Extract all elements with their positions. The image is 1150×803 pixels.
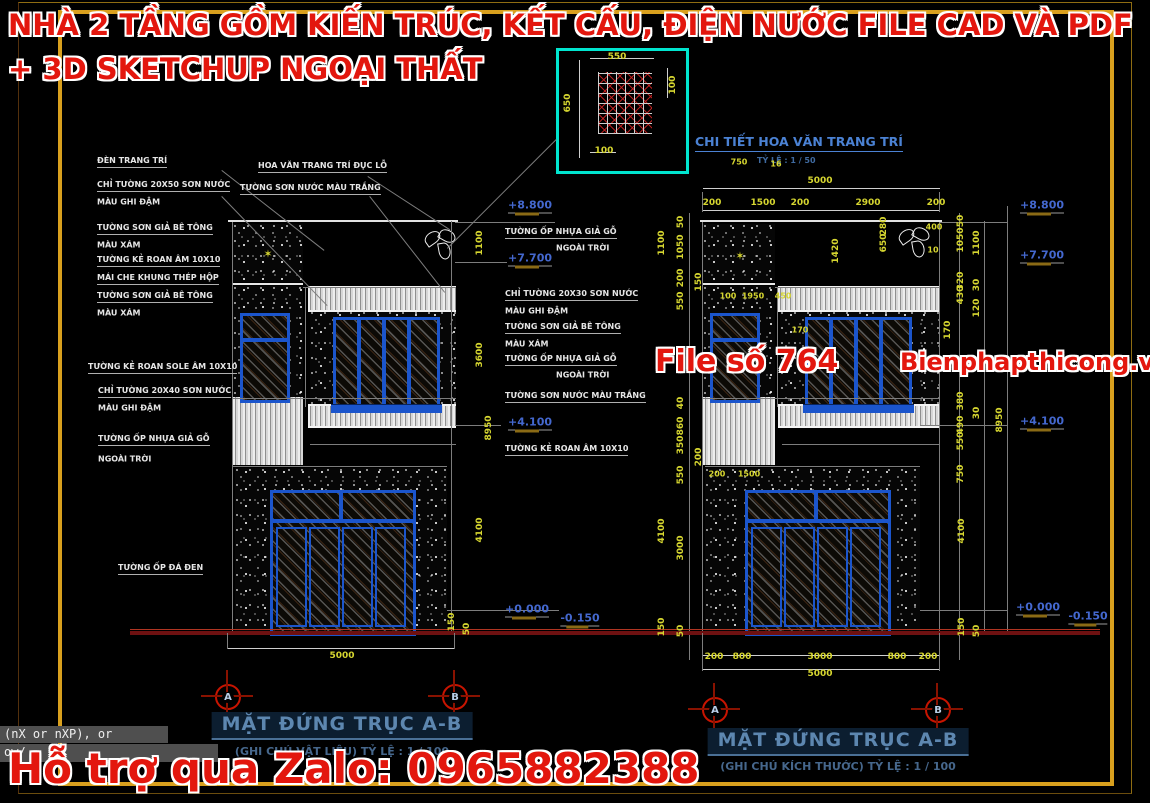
- line: [700, 220, 942, 222]
- dim-text: 350: [676, 436, 686, 455]
- door-leaf: [850, 527, 881, 627]
- dim-text: 1420: [831, 238, 841, 263]
- line: [303, 287, 456, 288]
- grid-axis-bubble: A: [215, 684, 241, 710]
- left-main-door: [270, 490, 416, 636]
- level-text: +0.000: [505, 603, 549, 618]
- note-label: ĐÈN TRANG TRÍ: [97, 156, 167, 168]
- grid-axis-bubble: B: [442, 684, 468, 710]
- window-mullion: [879, 320, 883, 404]
- window-sill: [803, 404, 914, 413]
- note-label: NGOÀI TRỜI: [556, 371, 609, 380]
- dim-text: 450: [775, 292, 792, 301]
- dim-text: 280: [879, 217, 889, 236]
- dim-text: 200: [791, 198, 810, 208]
- line: [305, 287, 306, 407]
- note-label: CHỈ TƯỜNG 20X50 SƠN NƯỚC: [97, 180, 230, 192]
- note-label: CHỈ TƯỜNG 20X40 SƠN NƯỚC: [98, 386, 231, 398]
- dim-text: 4100: [475, 517, 485, 542]
- line: [451, 221, 452, 632]
- dim-text: 50: [956, 215, 966, 228]
- dim-text: 1500: [750, 198, 775, 208]
- window-sill: [331, 404, 442, 413]
- door-leaf: [342, 527, 373, 627]
- note-label: TƯỜNG ỐP NHỰA GIẢ GỖ: [98, 434, 210, 446]
- line: [455, 222, 555, 223]
- line: [689, 213, 690, 660]
- dim-text: 800: [733, 652, 752, 662]
- dim-text: 100: [595, 146, 614, 156]
- dim-text: 3600: [475, 342, 485, 367]
- dim-text: 550: [608, 52, 627, 62]
- dim-text: 550: [676, 466, 686, 485]
- dim-text: 200: [709, 470, 726, 479]
- dim-text: 150: [447, 613, 457, 632]
- dim-text: 50: [972, 625, 982, 638]
- ornament-icon: ✶: [263, 248, 272, 261]
- dim-text: 170: [943, 321, 953, 340]
- dim-text: 16: [770, 160, 781, 169]
- note-label: TƯỜNG SƠN GIẢ BÊ TÔNG: [97, 223, 213, 235]
- note-label: TƯỜNG ỐP NHỰA GIẢ GỖ: [505, 227, 617, 239]
- dim-text: 200: [705, 652, 724, 662]
- line: [703, 398, 940, 399]
- note-label: TƯỜNG ỐP NHỰA GIẢ GỖ: [505, 354, 617, 366]
- dim-text: 170: [792, 326, 809, 335]
- level-text: +7.700: [1020, 249, 1064, 264]
- right-main-door: [745, 490, 891, 636]
- note-label: NGOÀI TRỜI: [98, 455, 151, 464]
- door-transom-bar: [273, 519, 413, 523]
- level-text: +8.800: [508, 199, 552, 214]
- line: [233, 398, 456, 399]
- left-small-window: [240, 313, 290, 403]
- grid-axis-bubble: B: [925, 697, 951, 723]
- door-leaf: [784, 527, 815, 627]
- note-label: CHỈ TƯỜNG 20X30 SƠN NƯỚC: [505, 289, 638, 301]
- dim-text: 40: [676, 397, 686, 410]
- line: [775, 287, 940, 288]
- command-line-row1[interactable]: (nX or nXP), or: [0, 726, 168, 743]
- dim-text: 8950: [995, 407, 1005, 432]
- watermark-zalo-contact: Hỗ trợ qua Zalo: 0965882388: [8, 744, 700, 793]
- line: [455, 425, 501, 426]
- dim-text: 5000: [807, 669, 832, 679]
- dim-text: 1100: [657, 230, 667, 255]
- line: [233, 466, 447, 467]
- leaf-ornament: [422, 228, 458, 266]
- ornament-icon: ✶: [735, 250, 744, 263]
- dim-text: 400: [926, 223, 943, 232]
- dim-text: 3000: [676, 535, 686, 560]
- dim-text: 4100: [657, 518, 667, 543]
- window-mullion: [357, 320, 361, 404]
- note-label: TƯỜNG SƠN NƯỚC MÀU TRẮNG: [240, 183, 381, 195]
- dim-text: 150: [694, 273, 704, 292]
- dim-text: 50: [676, 625, 686, 638]
- line: [310, 444, 456, 445]
- line: [939, 222, 940, 632]
- line: [228, 648, 455, 649]
- dim-text: 150: [657, 618, 667, 637]
- dim-text: 100: [668, 76, 678, 95]
- left-elevation-title: MẶT ĐỨNG TRỤC A-B: [212, 712, 473, 740]
- line: [130, 629, 1100, 630]
- window-mullion: [713, 338, 757, 342]
- note-label: TƯỜNG ỐP ĐÁ ĐEN: [118, 563, 203, 575]
- line: [232, 222, 233, 632]
- dim-text: 5000: [807, 176, 832, 186]
- left-band-line: [233, 283, 303, 285]
- dim-text: 550: [676, 292, 686, 311]
- watermark-file-number: File số 764: [655, 344, 838, 379]
- dim-text: 2900: [855, 198, 880, 208]
- level-text: +4.100: [508, 416, 552, 431]
- dim-text: 1100: [972, 230, 982, 255]
- window-mullion: [382, 320, 386, 404]
- level-text: -0.150: [560, 612, 599, 627]
- dim-text: 800: [888, 652, 907, 662]
- note-label: MÀU XÁM: [505, 340, 549, 349]
- grid-axis-bubble: A: [702, 697, 728, 723]
- level-text: +7.700: [508, 252, 552, 267]
- watermark-website: Bienphapthicong.vn: [900, 348, 1150, 376]
- note-label: TƯỜNG KẺ ROAN ÂM 10X10: [505, 444, 628, 456]
- door-transom-bar: [748, 519, 888, 523]
- right-wood-panel: [703, 397, 775, 465]
- dim-text: 5000: [329, 651, 354, 661]
- door-leaf: [751, 527, 782, 627]
- line: [579, 60, 580, 158]
- dim-text: 3000: [807, 652, 832, 662]
- dim-text: 750: [956, 465, 966, 484]
- level-text: +0.000: [1016, 601, 1060, 616]
- window-mullion: [854, 320, 858, 404]
- line: [703, 188, 940, 189]
- line: [703, 210, 940, 211]
- dim-text: 120: [972, 299, 982, 318]
- door-leaf: [276, 527, 307, 627]
- right-elevation-subtitle: (GHI CHÚ KÍCH THƯỚC) TỶ LỆ : 1 / 100: [720, 760, 956, 773]
- dim-text: 860: [676, 417, 686, 436]
- dim-text: 50: [676, 216, 686, 229]
- note-label: MÀU GHI ĐẬM: [97, 198, 160, 207]
- watermark-title-line1: NHÀ 2 TẦNG GỒM KIẾN TRÚC, KẾT CẤU, ĐIỆN …: [8, 8, 1133, 42]
- line: [702, 633, 703, 671]
- line: [227, 633, 228, 649]
- dim-text: 200: [676, 269, 686, 288]
- dim-text: 430: [956, 286, 966, 305]
- dim-text: 50: [462, 623, 472, 636]
- dim-text: 150: [957, 618, 967, 637]
- dim-text: 750: [731, 158, 748, 167]
- note-label: MÀU XÁM: [97, 241, 141, 250]
- door-leaf: [817, 527, 848, 627]
- dim-text: 1500: [738, 470, 760, 479]
- line: [130, 631, 1100, 635]
- line: [705, 466, 920, 467]
- detail-title: CHI TIẾT HOA VĂN TRANG TRÍ: [695, 134, 903, 152]
- note-label: NGOÀI TRỜI: [556, 244, 609, 253]
- door-transom-mullion: [339, 493, 343, 519]
- note-label: TƯỜNG KẺ ROAN ÂM 10X10: [97, 255, 220, 267]
- door-leaf: [375, 527, 406, 627]
- dim-text: 4100: [957, 518, 967, 543]
- line: [782, 444, 940, 445]
- right-band-line: [703, 283, 775, 285]
- door-leaf: [309, 527, 340, 627]
- level-text: +8.800: [1020, 199, 1064, 214]
- note-label: HOA VĂN TRANG TRÍ ĐỤC LỖ: [258, 161, 387, 173]
- note-label: MÀU GHI ĐẬM: [505, 307, 568, 316]
- line: [1007, 206, 1008, 632]
- dim-text: 380: [956, 392, 966, 411]
- dim-text: 8950: [484, 415, 494, 440]
- line: [228, 220, 458, 222]
- note-label: TƯỜNG KẺ ROAN SOLE ÂM 10X10: [88, 362, 237, 374]
- level-text: +4.100: [1020, 415, 1064, 430]
- line: [454, 633, 455, 649]
- window-mullion: [407, 320, 411, 404]
- detail-pattern-grid: [598, 72, 652, 134]
- door-transom-mullion: [814, 493, 818, 519]
- note-label: TƯỜNG SƠN NƯỚC MÀU TRẮNG: [505, 391, 646, 403]
- dim-text: 1050: [676, 234, 686, 259]
- cad-viewport[interactable]: CHI TIẾT HOA VĂN TRANG TRÍ TỶ LỆ : 1 / 5…: [0, 0, 1150, 803]
- dim-text: 1050: [956, 227, 966, 252]
- dim-text: 1950: [742, 292, 764, 301]
- left-wood-panel: [233, 397, 303, 465]
- left-canopy: [308, 286, 456, 312]
- level-text: -0.150: [1068, 610, 1107, 625]
- line: [920, 610, 1008, 611]
- dim-text: 100: [720, 292, 737, 301]
- dim-text: 650: [563, 94, 573, 113]
- window-mullion: [243, 338, 287, 342]
- dim-text: 650: [879, 234, 889, 253]
- dim-text: 200: [927, 198, 946, 208]
- line: [455, 262, 507, 263]
- right-elevation-title: MẶT ĐỨNG TRỤC A-B: [708, 728, 969, 756]
- line: [984, 221, 985, 632]
- note-label: MÁI CHE KHUNG THÉP HỘP: [97, 273, 219, 285]
- note-label: MÀU GHI ĐẬM: [98, 404, 161, 413]
- dim-text: 30: [972, 407, 982, 420]
- line: [939, 633, 940, 671]
- dim-text: 550: [956, 432, 966, 451]
- dim-text: 200: [919, 652, 938, 662]
- dim-text: 200: [694, 448, 704, 467]
- right-canopy: [778, 286, 940, 312]
- dim-text: 1100: [475, 230, 485, 255]
- line: [940, 222, 1008, 223]
- note-label: MÀU XÁM: [97, 309, 141, 318]
- note-label: TƯỜNG SƠN GIẢ BÊ TÔNG: [505, 322, 621, 334]
- dim-text: 10: [927, 246, 938, 255]
- note-label: TƯỜNG SƠN GIẢ BÊ TÔNG: [97, 291, 213, 303]
- watermark-title-line2: + 3D SKETCHUP NGOẠI THẤT: [8, 52, 482, 86]
- detail-scale: TỶ LỆ : 1 / 50: [757, 156, 816, 165]
- left-large-window: [333, 317, 440, 407]
- dim-text: 30: [972, 279, 982, 292]
- dim-text: 200: [703, 198, 722, 208]
